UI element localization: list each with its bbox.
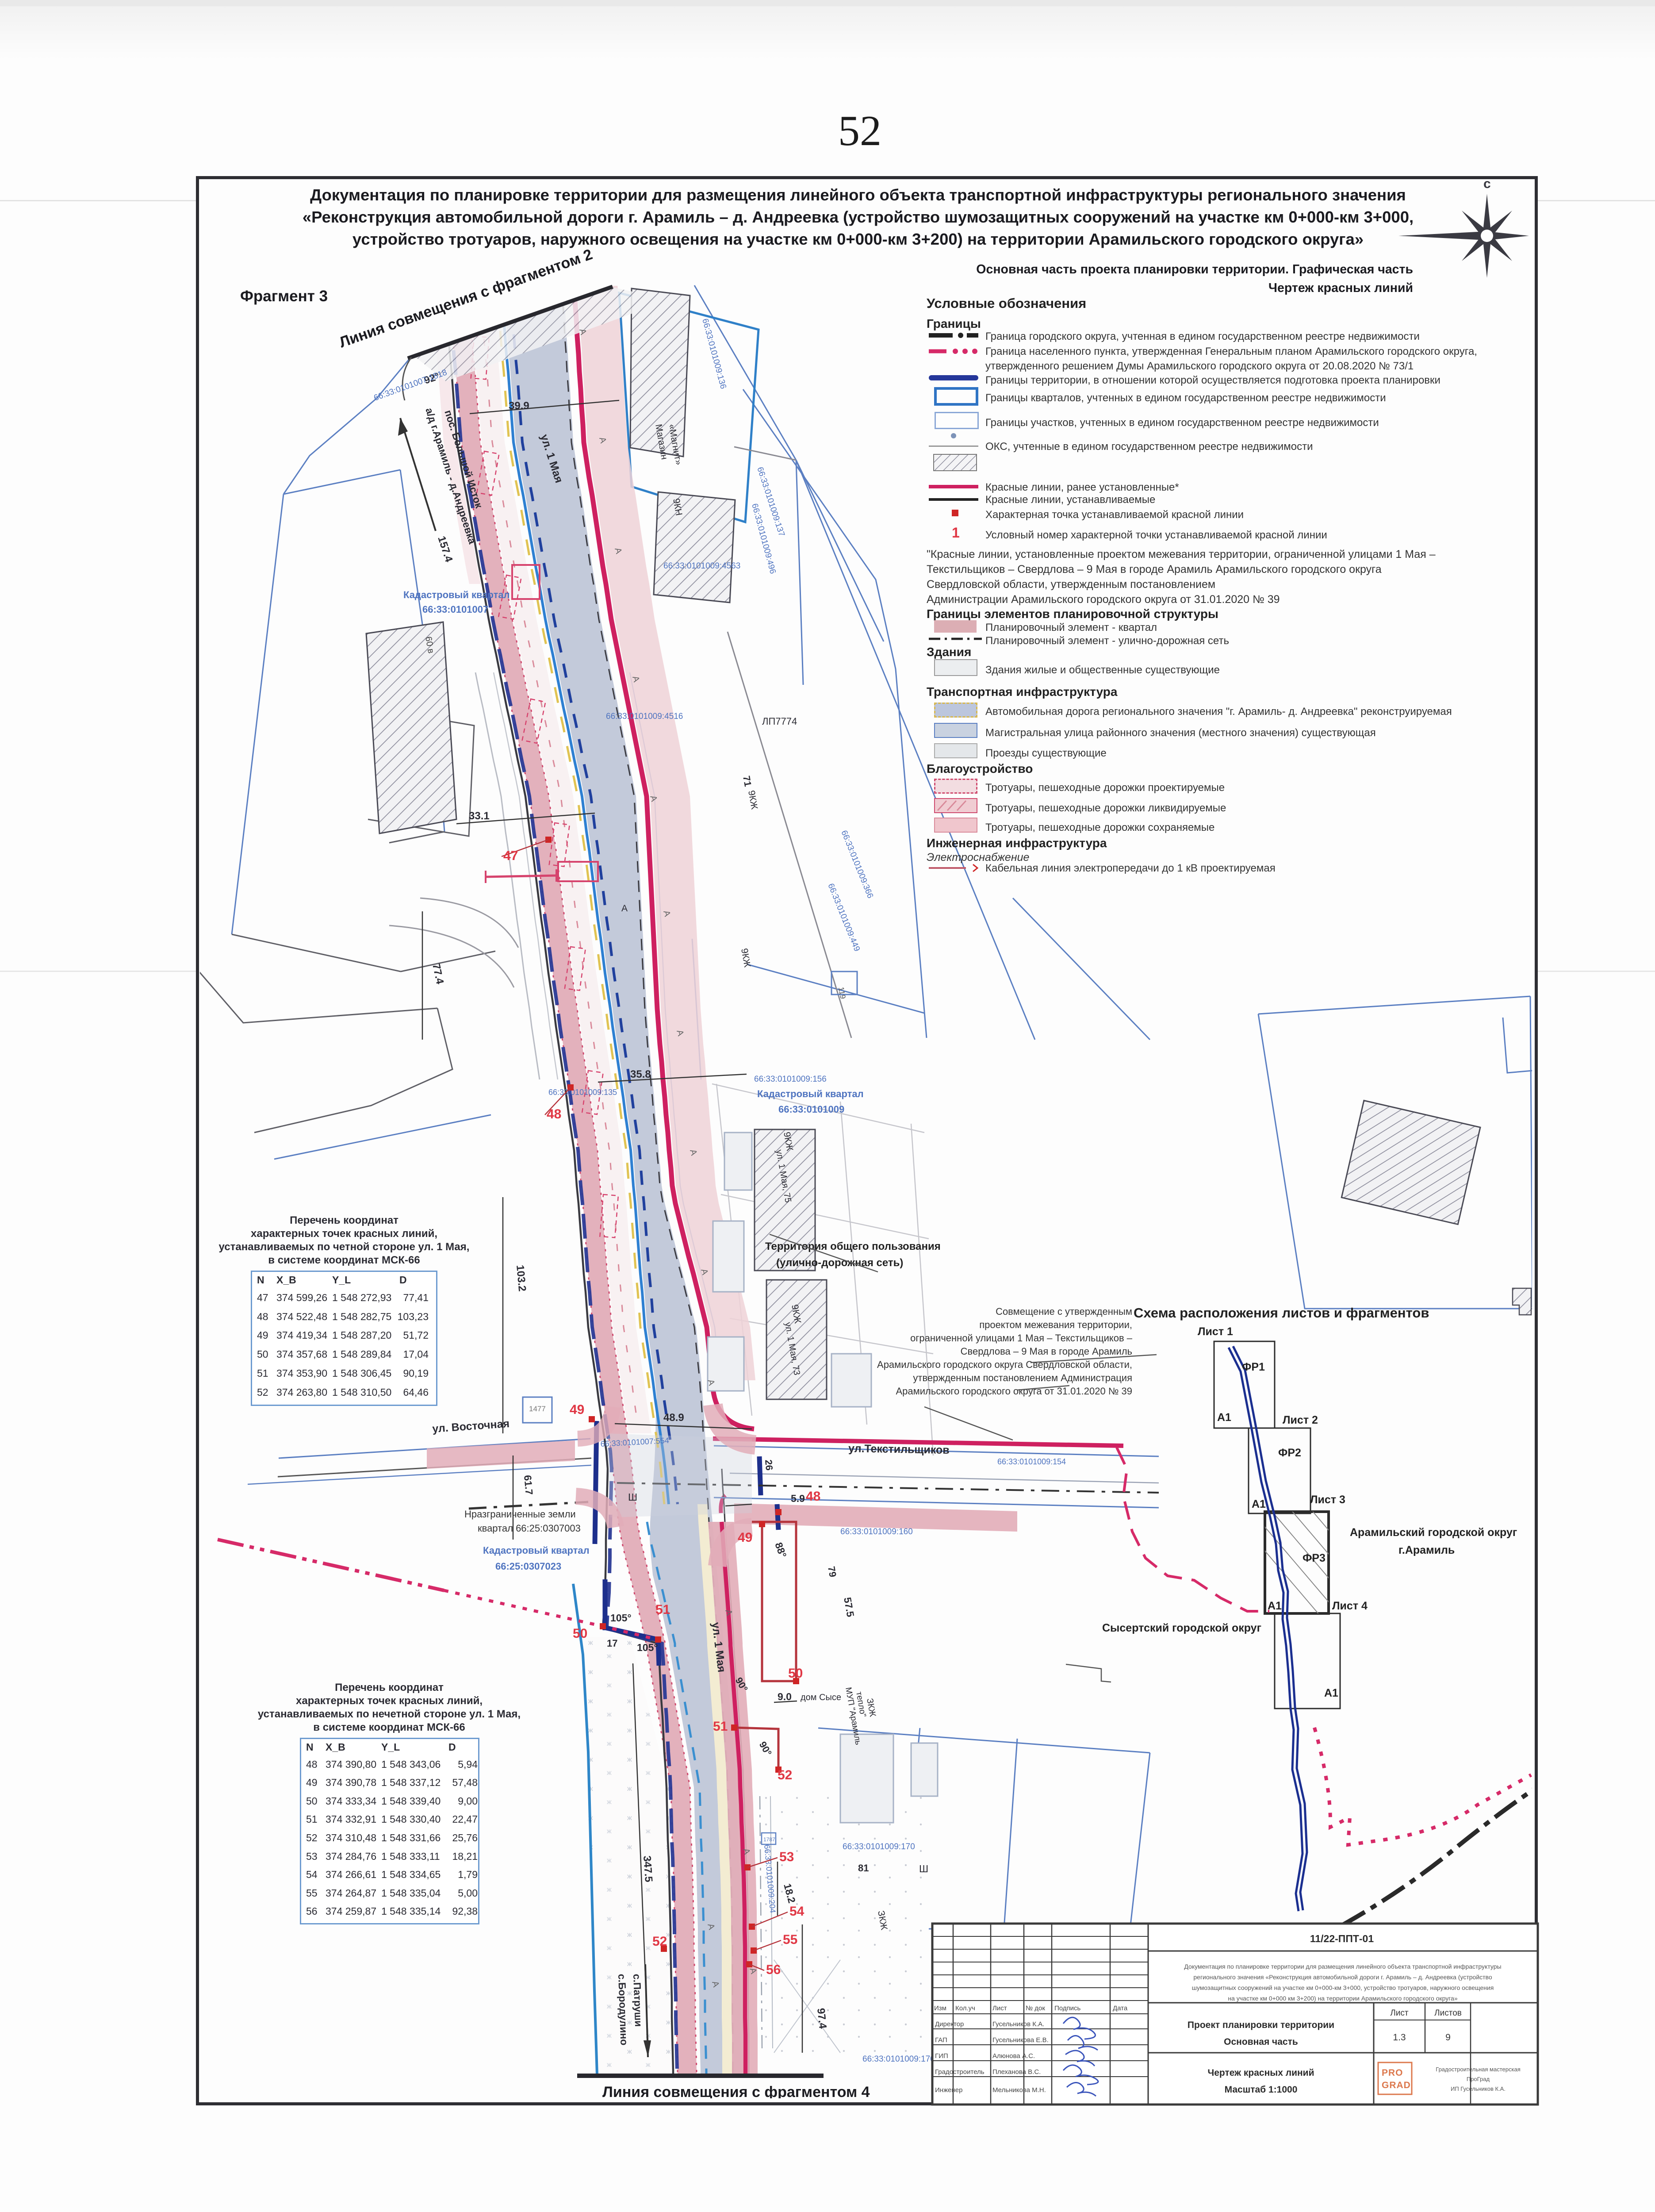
svg-text:Гусельников К.А.: Гусельников К.А. — [992, 2020, 1044, 2028]
svg-text:47: 47 — [503, 849, 518, 863]
svg-text:51: 51 — [655, 1602, 670, 1617]
svg-text:90°: 90° — [757, 1740, 774, 1758]
svg-text:97.4: 97.4 — [815, 2008, 829, 2030]
svg-text:Изм: Изм — [934, 2005, 946, 2012]
svg-text:ГИП: ГИП — [935, 2052, 948, 2060]
svg-text:Масштаб 1:1000: Масштаб 1:1000 — [1225, 2085, 1298, 2095]
svg-text:57.5: 57.5 — [842, 1596, 856, 1618]
svg-text:А: А — [621, 903, 628, 914]
svg-text:ФР2: ФР2 — [1278, 1447, 1301, 1459]
svg-text:66:33:0101007: 66:33:0101007 — [422, 604, 488, 615]
svg-text:81: 81 — [858, 1863, 869, 1874]
svg-text:1.3: 1.3 — [1393, 2032, 1406, 2043]
svg-text:ФР3: ФР3 — [1303, 1552, 1326, 1564]
svg-text:347.5: 347.5 — [641, 1855, 655, 1883]
svg-text:Линия совмещения с фрагментом: Линия совмещения с фрагментом 4 — [602, 2084, 870, 2101]
svg-text:55: 55 — [783, 1932, 797, 1947]
svg-text:56: 56 — [766, 1962, 781, 1977]
svg-text:49: 49 — [570, 1402, 584, 1417]
svg-text:49: 49 — [738, 1530, 752, 1545]
svg-text:66:33:0101009:136: 66:33:0101009:136 — [700, 318, 728, 390]
svg-text:ул. Восточная: ул. Восточная — [432, 1417, 510, 1435]
svg-text:GRAD: GRAD — [1382, 2080, 1411, 2090]
svg-text:71: 71 — [741, 775, 754, 787]
svg-text:79: 79 — [826, 1566, 839, 1578]
svg-text:с.Патруши: с.Патруши — [631, 1974, 644, 2027]
svg-text:105°: 105° — [610, 1612, 632, 1624]
svg-text:9КЖ: 9КЖ — [746, 790, 759, 810]
svg-text:Кадастровый квартал: Кадастровый квартал — [403, 589, 510, 600]
svg-text:Схема расположения листов и фр: Схема расположения листов и фрагментов — [1134, 1305, 1429, 1321]
svg-text:Дата: Дата — [1113, 2005, 1128, 2012]
svg-text:66:33:0101009:4516: 66:33:0101009:4516 — [606, 712, 683, 721]
svg-text:Лист 4: Лист 4 — [1332, 1600, 1368, 1612]
svg-text:Подпись: Подпись — [1054, 2005, 1081, 2012]
svg-text:50: 50 — [573, 1626, 587, 1641]
svg-text:66:33:0101009:160: 66:33:0101009:160 — [840, 1527, 913, 1536]
svg-text:48.9: 48.9 — [663, 1412, 684, 1424]
svg-text:52: 52 — [652, 1934, 667, 1949]
svg-text:Кол.уч: Кол.уч — [955, 2005, 975, 2012]
svg-text:88°: 88° — [773, 1541, 789, 1559]
svg-text:48: 48 — [547, 1107, 561, 1121]
svg-text:Основная часть: Основная часть — [1224, 2037, 1298, 2047]
svg-text:66:33:0101009:4563: 66:33:0101009:4563 — [663, 561, 740, 571]
svg-text:Лист 1: Лист 1 — [1198, 1325, 1233, 1338]
svg-text:Арамильский городской округ: Арамильский городской округ — [1350, 1526, 1517, 1539]
svg-text:А1: А1 — [1217, 1411, 1231, 1424]
svg-text:61.7: 61.7 — [522, 1475, 535, 1495]
svg-text:Гусельникова Е.В.: Гусельникова Е.В. — [992, 2036, 1049, 2044]
svg-text:на участке км 0+000 км 3+200): на участке км 0+000 км 3+200) на террито… — [1228, 1995, 1457, 2002]
svg-text:77.4: 77.4 — [430, 963, 446, 986]
svg-text:103.2: 103.2 — [514, 1264, 528, 1292]
svg-text:9: 9 — [1445, 2032, 1451, 2043]
svg-text:Плеханова В.С.: Плеханова В.С. — [992, 2068, 1041, 2076]
svg-text:ФР1: ФР1 — [1242, 1361, 1265, 1373]
svg-text:Листов: Листов — [1434, 2008, 1462, 2018]
svg-text:Лист 2: Лист 2 — [1283, 1414, 1318, 1426]
svg-text:Мельникова М.Н.: Мельникова М.Н. — [992, 2086, 1046, 2094]
svg-text:А1: А1 — [1268, 1600, 1282, 1612]
svg-text:105°: 105° — [637, 1642, 658, 1653]
svg-text:Документация по планировке тер: Документация по планировке территории дл… — [1184, 1963, 1501, 1970]
svg-text:А1: А1 — [1324, 1687, 1338, 1699]
svg-text:51: 51 — [713, 1719, 728, 1734]
svg-text:26: 26 — [763, 1459, 775, 1471]
svg-text:Ш: Ш — [628, 1491, 637, 1503]
svg-text:ИП Гусельников К.А.: ИП Гусельников К.А. — [1451, 2085, 1506, 2092]
svg-text:Градостроитель: Градостроитель — [935, 2068, 985, 2076]
svg-text:Инженер: Инженер — [935, 2086, 962, 2094]
svg-text:1477: 1477 — [529, 1405, 546, 1413]
svg-text:66:33:0101009:135: 66:33:0101009:135 — [548, 1088, 617, 1097]
svg-text:9КЖ: 9КЖ — [739, 948, 752, 968]
svg-text:33.1: 33.1 — [469, 810, 490, 822]
svg-text:дом Сысе: дом Сысе — [801, 1693, 841, 1702]
svg-text:66:33:0101009: 66:33:0101009 — [778, 1104, 844, 1115]
svg-text:Кадастровый квартал: Кадастровый квартал — [483, 1545, 590, 1556]
svg-text:Лист: Лист — [992, 2005, 1007, 2012]
svg-text:54: 54 — [789, 1904, 805, 1919]
svg-text:66:33:0101009:170: 66:33:0101009:170 — [843, 1842, 915, 1851]
svg-text:шумозащитных сооружений на уча: шумозащитных сооружений на участке км 0+… — [1192, 1984, 1494, 1991]
svg-text:регионального значения «Реконс: регионального значения «Реконструкция ав… — [1193, 1974, 1492, 1981]
svg-text:53: 53 — [779, 1850, 794, 1864]
svg-text:35.8: 35.8 — [630, 1068, 651, 1080]
svg-text:50: 50 — [788, 1666, 803, 1681]
svg-text:66:33:0101009:366: 66:33:0101009:366 — [839, 829, 875, 900]
svg-text:№ док: № док — [1026, 2005, 1045, 2012]
svg-text:66:33:0101009:449: 66:33:0101009:449 — [826, 882, 862, 953]
svg-text:17: 17 — [607, 1638, 617, 1649]
svg-text:Сысертский городской округ: Сысертский городской округ — [1102, 1622, 1261, 1634]
svg-text:52: 52 — [778, 1768, 792, 1782]
svg-text:Кадастровый квартал: Кадастровый квартал — [757, 1088, 864, 1099]
svg-text:119: 119 — [837, 986, 847, 999]
svg-text:1787: 1787 — [763, 1836, 775, 1843]
svg-text:5.9: 5.9 — [791, 1493, 805, 1504]
svg-text:11/22-ППТ-01: 11/22-ППТ-01 — [1310, 1933, 1374, 1944]
svg-text:Проект планировки территории: Проект планировки территории — [1188, 2020, 1334, 2030]
svg-text:66:33:0101009:170: 66:33:0101009:170 — [862, 2055, 935, 2064]
svg-text:Лист 3: Лист 3 — [1310, 1494, 1345, 1506]
svg-text:39.9: 39.9 — [509, 400, 529, 412]
svg-text:г.Арамиль: г.Арамиль — [1398, 1544, 1455, 1556]
svg-text:157.4: 157.4 — [435, 535, 455, 564]
svg-text:Ш: Ш — [919, 1863, 928, 1874]
svg-text:Лист: Лист — [1390, 2008, 1409, 2018]
svg-text:66:25:0307023: 66:25:0307023 — [495, 1561, 561, 1572]
svg-text:Нразграниченные земли: Нразграниченные земли — [464, 1509, 576, 1520]
svg-text:48: 48 — [806, 1489, 820, 1504]
svg-text:ЛП7774: ЛП7774 — [762, 716, 797, 727]
svg-text:ПроГрад: ПроГрад — [1467, 2076, 1490, 2082]
svg-text:Директор: Директор — [935, 2020, 964, 2028]
svg-text:Алюнова А.С.: Алюнова А.С. — [992, 2052, 1035, 2060]
svg-text:66:33:0101007:1818: 66:33:0101007:1818 — [373, 368, 448, 403]
svg-text:66:33:0101009:156: 66:33:0101009:156 — [754, 1075, 827, 1084]
svg-text:Градостроительная мастерская: Градостроительная мастерская — [1436, 2066, 1520, 2073]
svg-text:9.0: 9.0 — [778, 1691, 792, 1702]
svg-text:А1: А1 — [1252, 1498, 1266, 1510]
svg-text:ГАП: ГАП — [935, 2036, 947, 2044]
svg-text:Чертеж красных линий: Чертеж красных линий — [1208, 2068, 1314, 2078]
svg-text:ул.Текстильщиков: ул.Текстильщиков — [848, 1442, 950, 1456]
svg-text:квартал 66:25:0307003: квартал 66:25:0307003 — [478, 1523, 581, 1534]
svg-text:PRO: PRO — [1382, 2068, 1403, 2078]
